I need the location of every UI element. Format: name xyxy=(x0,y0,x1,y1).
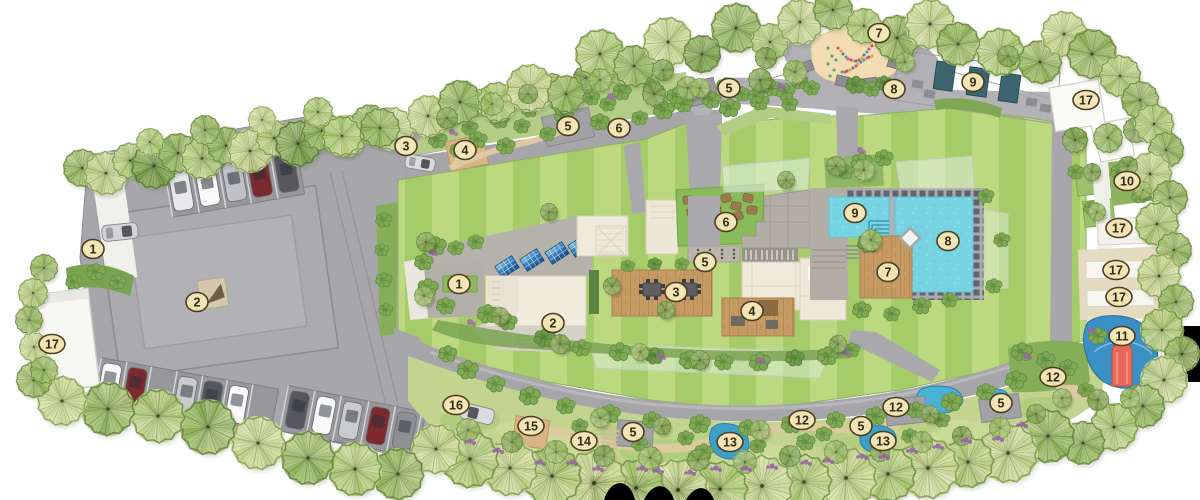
svg-text:6: 6 xyxy=(616,121,623,135)
svg-text:6: 6 xyxy=(723,215,730,229)
svg-text:15: 15 xyxy=(524,419,538,433)
svg-text:7: 7 xyxy=(885,265,892,279)
svg-text:17: 17 xyxy=(1079,93,1093,107)
svg-text:17: 17 xyxy=(1112,290,1126,304)
svg-text:14: 14 xyxy=(577,434,591,448)
svg-text:4: 4 xyxy=(749,304,756,318)
svg-text:10: 10 xyxy=(1120,174,1134,188)
svg-text:1: 1 xyxy=(456,277,463,291)
svg-text:7: 7 xyxy=(876,26,883,40)
svg-text:17: 17 xyxy=(1109,263,1123,277)
svg-text:9: 9 xyxy=(970,75,977,89)
svg-text:3: 3 xyxy=(403,139,410,153)
svg-text:5: 5 xyxy=(702,255,709,269)
svg-text:8: 8 xyxy=(945,234,952,248)
svg-text:2: 2 xyxy=(194,295,201,309)
svg-text:5: 5 xyxy=(565,119,572,133)
svg-text:16: 16 xyxy=(449,398,463,412)
svg-text:2: 2 xyxy=(550,316,557,330)
svg-text:17: 17 xyxy=(45,337,59,351)
svg-text:5: 5 xyxy=(858,419,865,433)
svg-text:1: 1 xyxy=(90,242,97,256)
svg-text:5: 5 xyxy=(726,81,733,95)
svg-text:8: 8 xyxy=(891,82,898,96)
svg-text:17: 17 xyxy=(1112,221,1126,235)
svg-text:12: 12 xyxy=(795,413,809,427)
svg-text:3: 3 xyxy=(673,285,680,299)
svg-text:12: 12 xyxy=(1046,370,1060,384)
svg-text:12: 12 xyxy=(889,400,903,414)
svg-text:9: 9 xyxy=(852,206,859,220)
svg-text:5: 5 xyxy=(998,396,1005,410)
svg-text:5: 5 xyxy=(630,425,637,439)
svg-text:13: 13 xyxy=(723,435,737,449)
svg-text:11: 11 xyxy=(1115,329,1128,343)
svg-text:13: 13 xyxy=(876,434,890,448)
svg-text:4: 4 xyxy=(462,143,469,157)
